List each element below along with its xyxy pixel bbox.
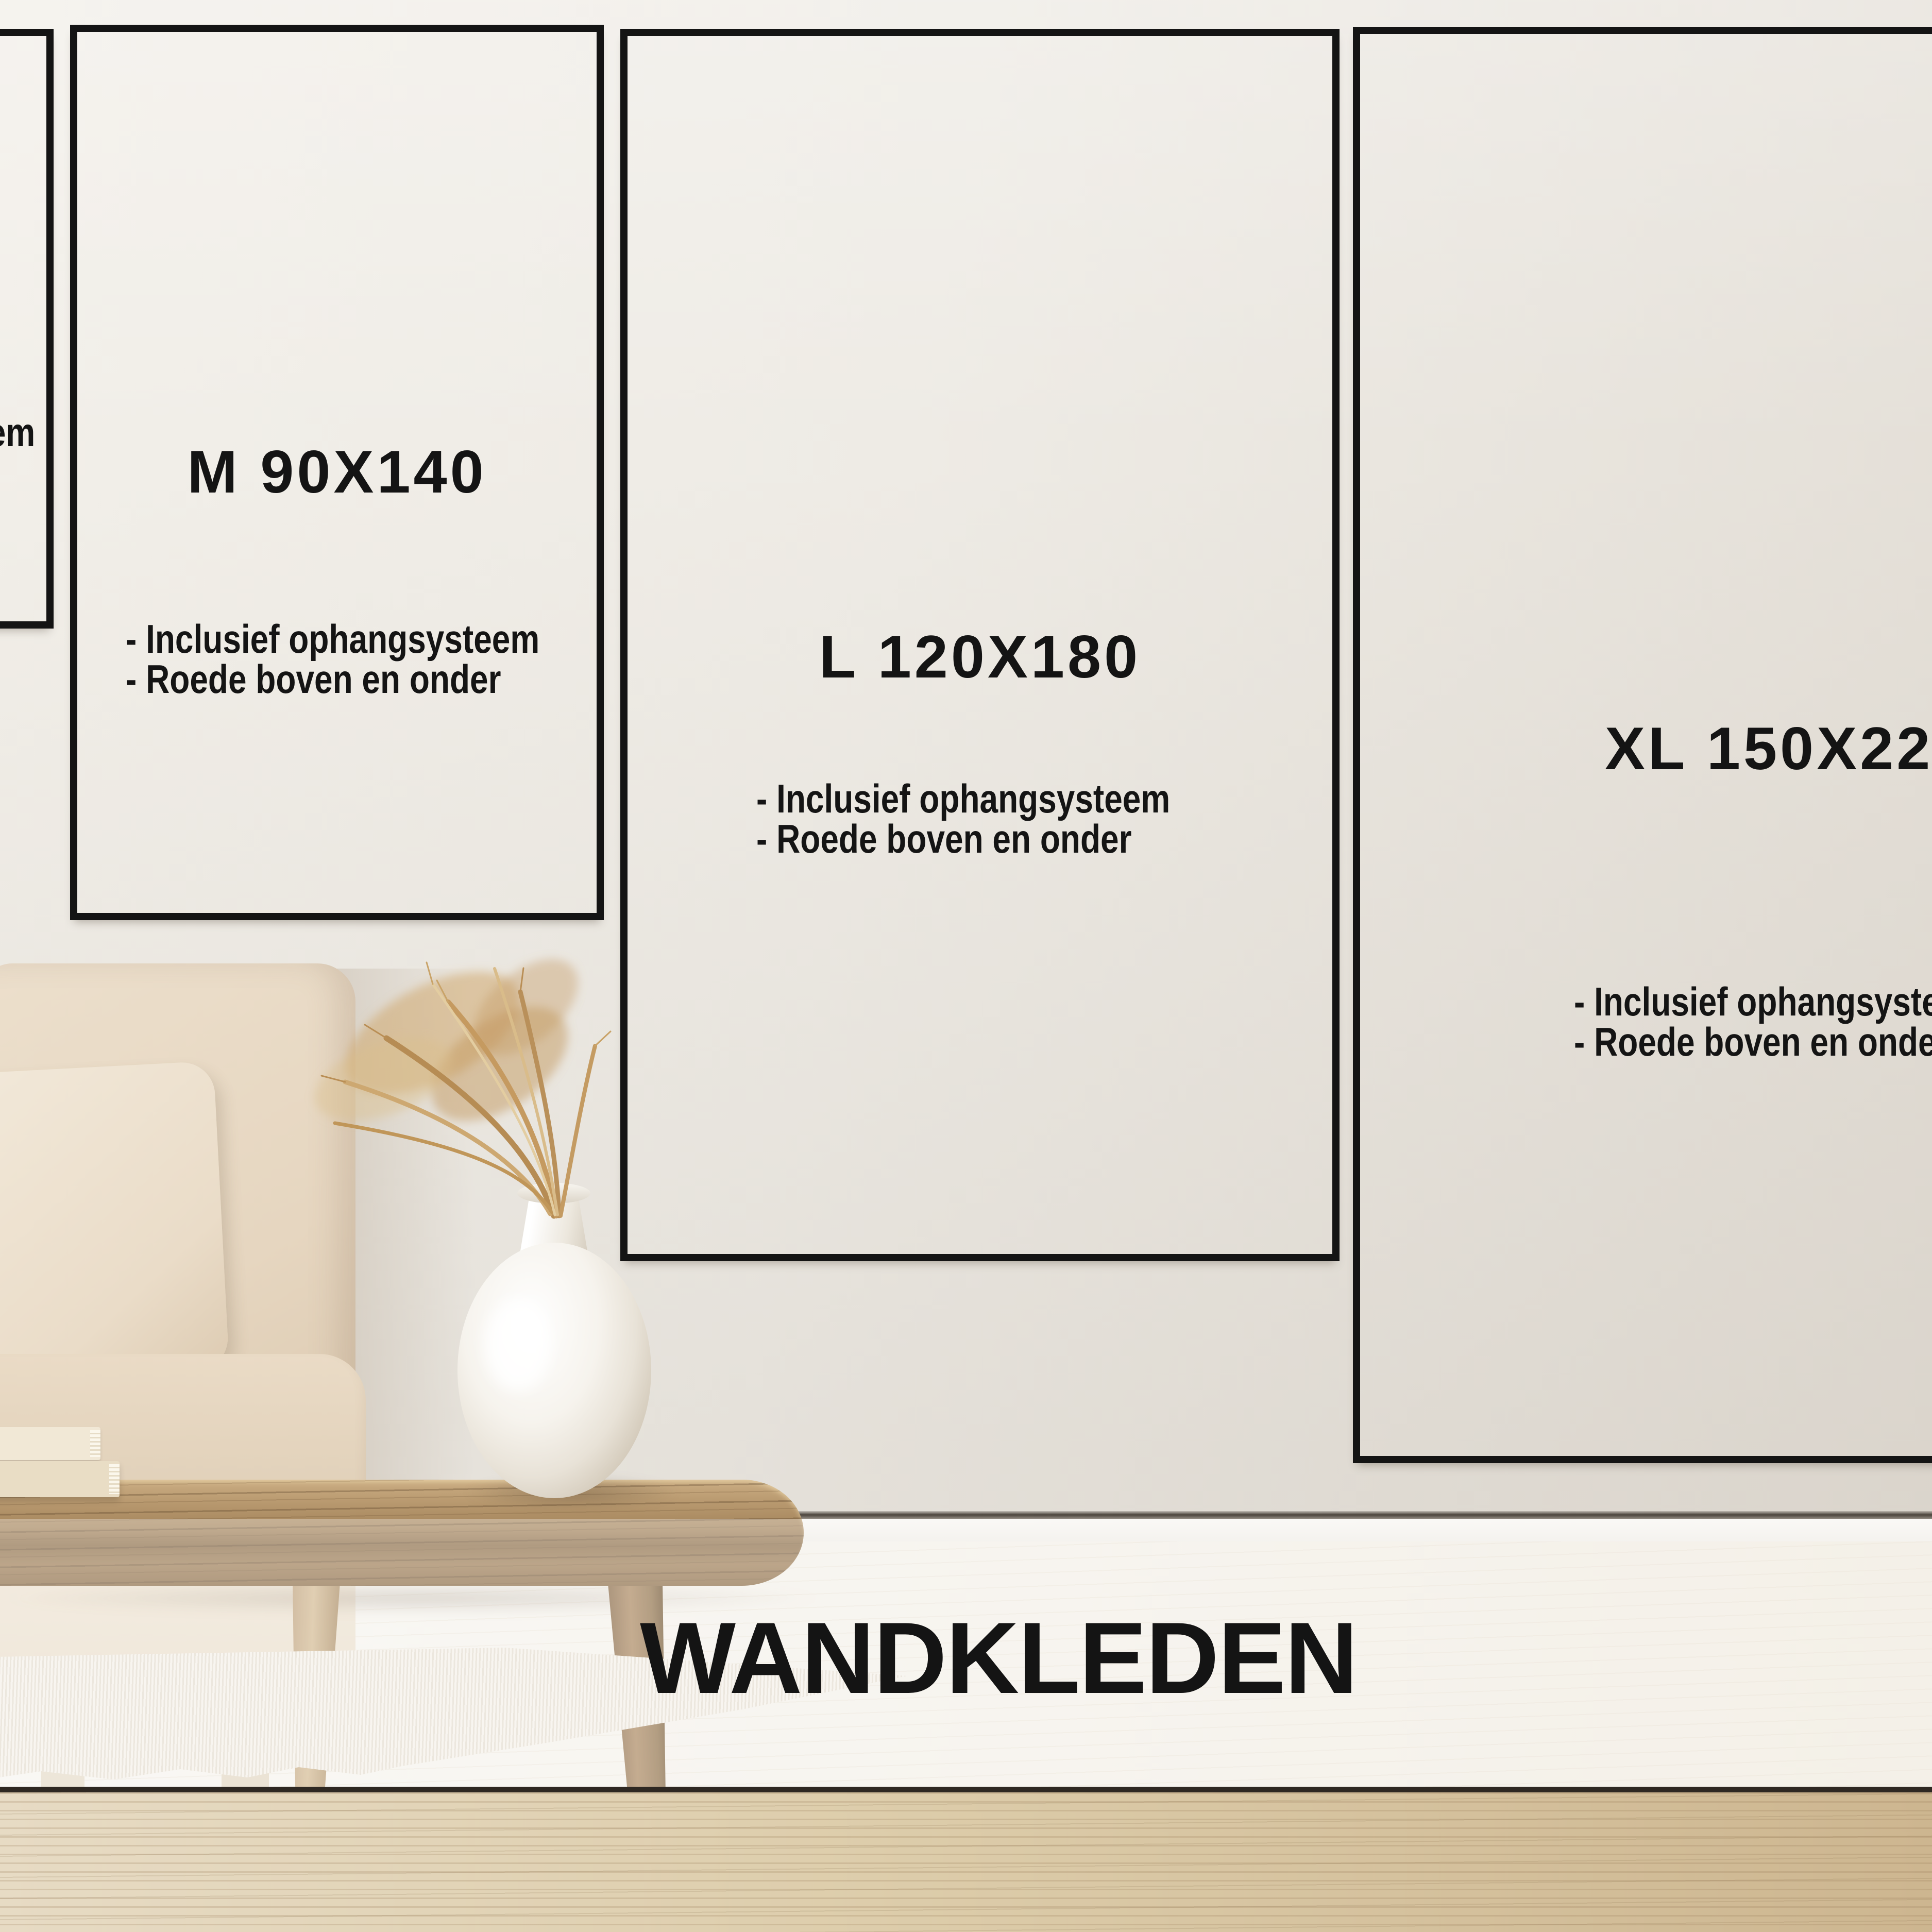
bullet-line: - Roede boven en onder	[0, 452, 35, 493]
pillow	[0, 1061, 229, 1383]
bullet-line: - Roede boven en onder	[756, 819, 1170, 859]
size-bullets-s: - Inclusief ophangsysteem - Roede boven …	[0, 412, 35, 493]
wandkleden-size-guide: M 90X140 L 120X180 XL 150X220 - Inclusie…	[0, 0, 1932, 1932]
bullet-line: - Roede boven en onder	[1574, 1022, 1932, 1062]
ledge-dark-line	[0, 1787, 1932, 1792]
pampas-grass	[278, 943, 629, 1283]
bullet-line: - Inclusief ophangsysteem	[1574, 981, 1932, 1022]
size-label-xl: XL 150X220	[1605, 718, 1932, 778]
bullet-line: - Inclusief ophangsysteem	[0, 412, 35, 452]
bullet-line: - Inclusief ophangsysteem	[126, 619, 539, 659]
book	[0, 1461, 120, 1497]
page-title: WANDKLEDEN	[638, 1606, 1359, 1709]
book	[0, 1427, 100, 1460]
size-bullets-l: - Inclusief ophangsysteem - Roede boven …	[756, 778, 1170, 859]
bullet-line: - Roede boven en onder	[126, 659, 539, 699]
bottom-wood-ledge	[0, 1792, 1932, 1932]
book-pages	[90, 1430, 100, 1457]
book-pages	[109, 1464, 120, 1494]
size-label-m: M 90X140	[70, 442, 604, 502]
size-box-s-partial	[0, 29, 54, 629]
size-bullets-xl: - Inclusief ophangsysteem - Roede boven …	[1574, 981, 1932, 1062]
vase-highlight	[484, 1298, 551, 1391]
size-bullets-m: - Inclusief ophangsysteem - Roede boven …	[126, 619, 539, 699]
size-label-l: L 120X180	[620, 626, 1340, 687]
bullet-line: - Inclusief ophangsysteem	[756, 778, 1170, 819]
